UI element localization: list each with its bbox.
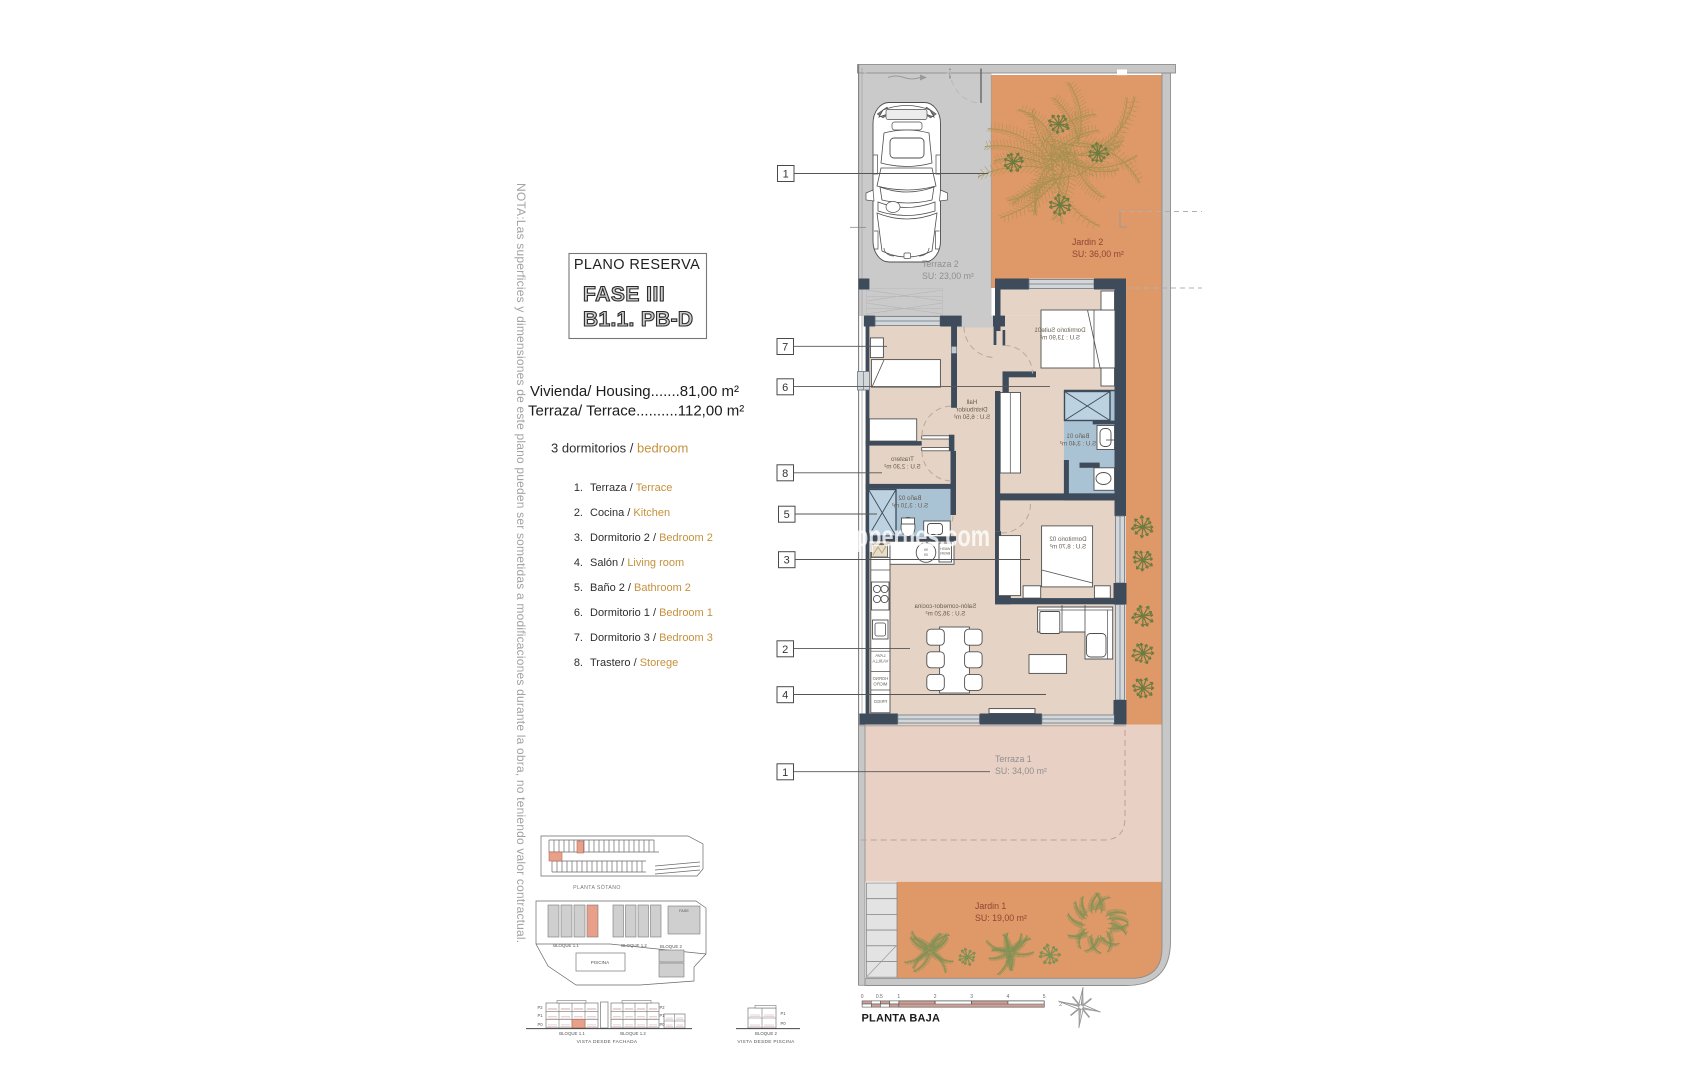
svg-text:BLOQUE 1.1: BLOQUE 1.1 bbox=[559, 1031, 585, 1036]
svg-text:Terraza / Terrace: Terraza / Terrace bbox=[590, 482, 672, 494]
svg-text:P0: P0 bbox=[780, 1021, 786, 1026]
svg-text:Vivienda/ Housing.......81,00: Vivienda/ Housing.......81,00 m² bbox=[530, 383, 739, 400]
svg-text:7.: 7. bbox=[574, 632, 583, 644]
svg-text:Terraza 2: Terraza 2 bbox=[922, 259, 959, 269]
svg-text:P1: P1 bbox=[537, 1013, 543, 1018]
svg-text:Dormitorio Suite01: Dormitorio Suite01 bbox=[1034, 327, 1086, 334]
svg-text:2: 2 bbox=[934, 994, 937, 1000]
svg-text:FRIGO: FRIGO bbox=[873, 699, 887, 704]
svg-text:FASE III: FASE III bbox=[583, 283, 665, 306]
svg-text:Hall: Hall bbox=[967, 399, 978, 406]
svg-text:Trastero / Storege: Trastero / Storege bbox=[590, 657, 678, 669]
svg-text:1: 1 bbox=[783, 169, 789, 181]
svg-text:P2: P2 bbox=[537, 1005, 543, 1010]
svg-text:7: 7 bbox=[782, 342, 788, 354]
svg-text:VISTA DESDE PISCINA: VISTA DESDE PISCINA bbox=[737, 1039, 795, 1045]
svg-text:5.: 5. bbox=[574, 582, 583, 594]
svg-text:S.U : 2,30 m²: S.U : 2,30 m² bbox=[884, 463, 920, 470]
svg-text:LAVA: LAVA bbox=[875, 653, 885, 658]
svg-text:Salón-comedor-cocina: Salón-comedor-cocina bbox=[914, 603, 976, 610]
svg-text:S.U : 8,70 m²: S.U : 8,70 m² bbox=[1050, 543, 1086, 550]
svg-text:pperties.com: pperties.com bbox=[855, 520, 990, 553]
svg-text:8: 8 bbox=[782, 468, 788, 480]
svg-text:Dormitorio 2 / Bedroom 2: Dormitorio 2 / Bedroom 2 bbox=[590, 532, 713, 544]
svg-text:BLOQUE 1.2: BLOQUE 1.2 bbox=[620, 1031, 646, 1036]
svg-text:Distribuidor: Distribuidor bbox=[956, 406, 987, 413]
svg-text:Salón / Living room: Salón / Living room bbox=[590, 557, 684, 569]
svg-text:1.: 1. bbox=[574, 482, 583, 494]
svg-text:Jardin 1: Jardin 1 bbox=[975, 901, 1006, 911]
svg-text:P0: P0 bbox=[537, 1022, 543, 1027]
svg-text:PISCINA: PISCINA bbox=[591, 960, 610, 965]
svg-text:S.U : 3,10 m²: S.U : 3,10 m² bbox=[892, 502, 928, 509]
svg-text:Trastero: Trastero bbox=[891, 456, 914, 463]
svg-text:Terraza/ Terrace..........112,: Terraza/ Terrace..........112,00 m² bbox=[528, 403, 744, 420]
svg-text:Dormitorio 3 / Bedroom 3: Dormitorio 3 / Bedroom 3 bbox=[590, 632, 713, 644]
svg-text:PLANTA SÓTANO: PLANTA SÓTANO bbox=[573, 884, 621, 891]
svg-text:Dormitorio 02: Dormitorio 02 bbox=[1049, 536, 1087, 543]
svg-text:VAJILLA: VAJILLA bbox=[872, 658, 888, 663]
svg-text:NOTA:Las superficies y dimensi: NOTA:Las superficies y dimensiones de es… bbox=[514, 183, 528, 943]
svg-text:6.: 6. bbox=[574, 607, 583, 619]
svg-text:8.: 8. bbox=[574, 657, 583, 669]
svg-text:P0: P0 bbox=[659, 1022, 665, 1027]
svg-text:PLANTA BAJA: PLANTA BAJA bbox=[862, 1012, 941, 1024]
svg-text:Dormitorio 1 / Bedroom 1: Dormitorio 1 / Bedroom 1 bbox=[590, 607, 713, 619]
svg-text:Terraza 1: Terraza 1 bbox=[995, 754, 1032, 764]
svg-text:4: 4 bbox=[782, 690, 788, 702]
svg-text:Baño 2 / Bathroom 2: Baño 2 / Bathroom 2 bbox=[590, 582, 691, 594]
svg-text:3.: 3. bbox=[574, 532, 583, 544]
svg-text:0.5: 0.5 bbox=[876, 994, 883, 1000]
svg-text:FASE: FASE bbox=[679, 909, 689, 913]
svg-text:09: 09 bbox=[924, 553, 928, 557]
svg-text:2: 2 bbox=[782, 644, 788, 656]
svg-text:P1: P1 bbox=[659, 1013, 665, 1018]
svg-text:BLOQUE 2: BLOQUE 2 bbox=[660, 944, 683, 949]
svg-text:SU: 23,00 m²: SU: 23,00 m² bbox=[922, 271, 974, 281]
svg-text:Cocina / Kitchen: Cocina / Kitchen bbox=[590, 507, 670, 519]
svg-text:P2: P2 bbox=[659, 1005, 665, 1010]
svg-text:S.U : 3,40 m²: S.U : 3,40 m² bbox=[1060, 440, 1096, 447]
svg-text:S.U : 6,50 m²: S.U : 6,50 m² bbox=[954, 414, 990, 421]
svg-text:SU: 34,00 m²: SU: 34,00 m² bbox=[995, 766, 1047, 776]
svg-text:Jardin 2: Jardin 2 bbox=[1072, 237, 1103, 247]
svg-text:5: 5 bbox=[1043, 994, 1046, 1000]
svg-text:0: 0 bbox=[861, 994, 864, 1000]
svg-text:1: 1 bbox=[897, 994, 900, 1000]
svg-text:HORNO: HORNO bbox=[872, 676, 888, 681]
svg-text:BLOQUE 1.2: BLOQUE 1.2 bbox=[621, 943, 647, 948]
svg-text:MICRO: MICRO bbox=[873, 681, 888, 686]
svg-text:P1: P1 bbox=[780, 1011, 786, 1016]
svg-text:S.U : 36,20 m²: S.U : 36,20 m² bbox=[926, 610, 966, 617]
svg-text:4.: 4. bbox=[574, 557, 583, 569]
svg-text:S.U : 13,90 m²: S.U : 13,90 m² bbox=[1040, 334, 1080, 341]
svg-text:B1.1. PB-D: B1.1. PB-D bbox=[583, 308, 693, 331]
svg-text:6: 6 bbox=[782, 382, 788, 394]
svg-text:3: 3 bbox=[784, 555, 790, 567]
svg-text:PLANO RESERVA: PLANO RESERVA bbox=[574, 257, 700, 273]
svg-text:Baño 01: Baño 01 bbox=[1066, 433, 1090, 440]
svg-text:3 dormitorios / bedroom: 3 dormitorios / bedroom bbox=[551, 440, 688, 455]
svg-text:SU: 19,00 m²: SU: 19,00 m² bbox=[975, 913, 1027, 923]
svg-text:VISTA DESDE FACHADA: VISTA DESDE FACHADA bbox=[577, 1039, 638, 1045]
svg-text:BLOQUE 2: BLOQUE 2 bbox=[755, 1031, 778, 1036]
svg-text:5: 5 bbox=[784, 509, 790, 521]
svg-text:BLOQUE 1.1: BLOQUE 1.1 bbox=[553, 943, 579, 948]
svg-text:Baño 02: Baño 02 bbox=[898, 495, 922, 502]
svg-text:3: 3 bbox=[970, 994, 973, 1000]
svg-text:SU: 36,00 m²: SU: 36,00 m² bbox=[1072, 249, 1124, 259]
svg-text:2.: 2. bbox=[574, 507, 583, 519]
svg-text:4: 4 bbox=[1007, 994, 1010, 1000]
svg-text:1: 1 bbox=[782, 767, 788, 779]
